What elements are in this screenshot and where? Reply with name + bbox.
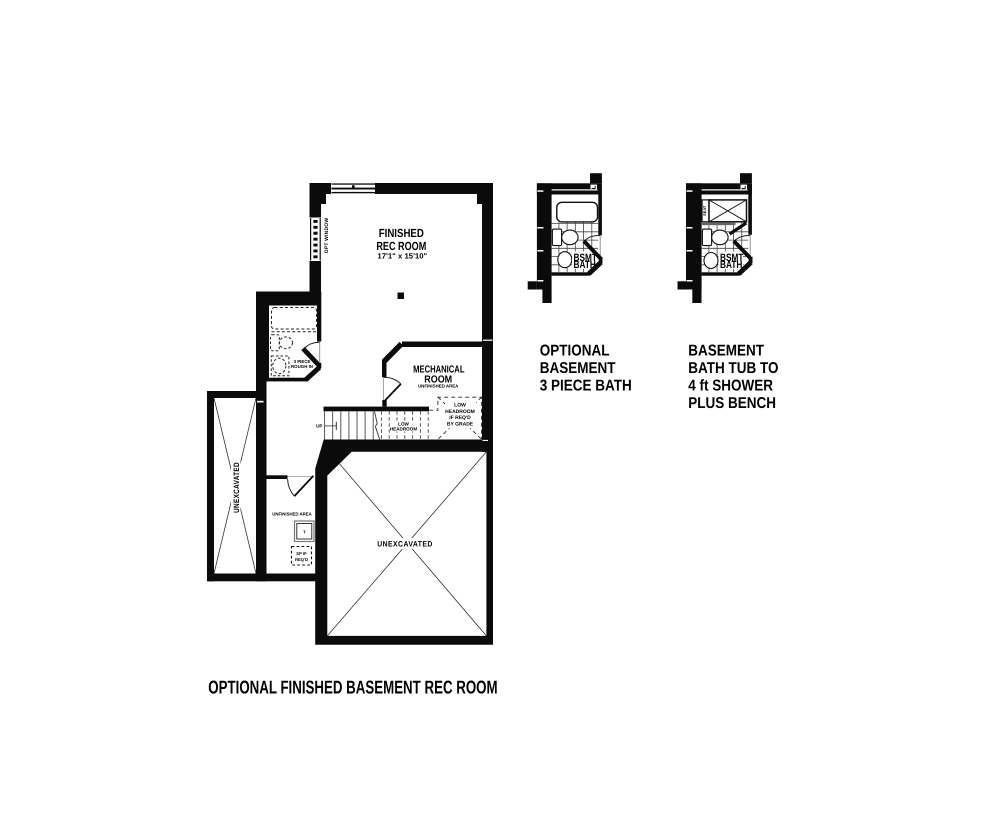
svg-text:BASEMENT: BASEMENT [540, 360, 616, 377]
svg-text:ROUGH IN: ROUGH IN [291, 364, 313, 369]
svg-text:OPTIONAL: OPTIONAL [540, 343, 610, 360]
svg-text:BATH: BATH [720, 259, 742, 271]
svg-text:BY GRADE: BY GRADE [447, 422, 474, 428]
svg-text:UNEXCAVATED: UNEXCAVATED [377, 539, 433, 548]
svg-text:17'1" x 15'10": 17'1" x 15'10" [377, 252, 427, 261]
svg-text:UNFINISHED AREA: UNFINISHED AREA [418, 383, 459, 388]
svg-text:SEAT: SEAT [702, 205, 707, 216]
svg-text:BASEMENT: BASEMENT [688, 343, 764, 360]
svg-text:OPTIONAL FINISHED BASEMENT REC: OPTIONAL FINISHED BASEMENT REC ROOM [208, 676, 497, 697]
svg-text:IF REQ'D: IF REQ'D [449, 415, 471, 421]
svg-text:4 ft SHOWER: 4 ft SHOWER [688, 378, 773, 395]
svg-text:HEADROOM: HEADROOM [390, 427, 417, 432]
svg-text:OPT WINDOW: OPT WINDOW [324, 218, 330, 254]
svg-text:BATH TUB TO: BATH TUB TO [688, 360, 778, 377]
svg-text:FINISHED: FINISHED [379, 226, 425, 240]
svg-text:LOW: LOW [454, 402, 466, 408]
svg-text:PLUS BENCH: PLUS BENCH [688, 395, 776, 412]
svg-text:UNFINISHED AREA: UNFINISHED AREA [272, 512, 311, 517]
svg-text:UNEXCAVATED: UNEXCAVATED [232, 462, 241, 513]
svg-text:3 PIECE BATH: 3 PIECE BATH [540, 378, 632, 395]
svg-text:REQ'D: REQ'D [295, 557, 308, 562]
svg-text:SP IF: SP IF [296, 551, 307, 556]
svg-text:HEADROOM: HEADROOM [445, 409, 475, 415]
svg-text:T: T [303, 530, 306, 535]
svg-text:UP: UP [316, 423, 322, 428]
